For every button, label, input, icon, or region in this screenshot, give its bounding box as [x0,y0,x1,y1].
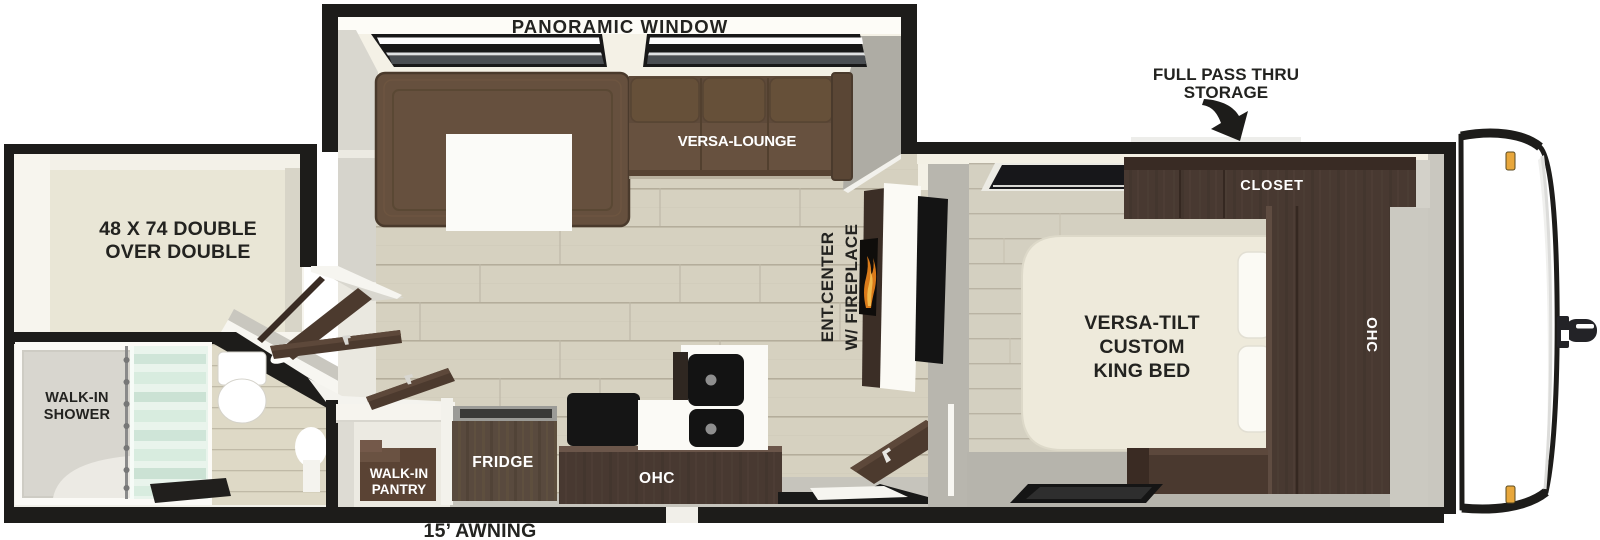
svg-text:W/ FIREPLACE: W/ FIREPLACE [842,224,861,351]
svg-text:SHOWER: SHOWER [44,407,111,423]
svg-text:FRIDGE: FRIDGE [472,454,534,471]
svg-text:WALK-IN: WALK-IN [370,466,428,481]
svg-text:48 X 74 DOUBLE: 48 X 74 DOUBLE [99,218,257,240]
svg-text:CUSTOM: CUSTOM [1099,336,1184,358]
svg-text:15’ AWNING: 15’ AWNING [424,520,537,540]
svg-text:VERSA-LOUNGE: VERSA-LOUNGE [678,133,797,150]
svg-text:OHC: OHC [1363,317,1380,353]
svg-text:PANTRY: PANTRY [372,482,427,497]
svg-text:FULL PASS THRU: FULL PASS THRU [1153,65,1299,84]
svg-text:VERSA-TILT: VERSA-TILT [1084,312,1199,334]
svg-text:STORAGE: STORAGE [1184,83,1268,102]
svg-text:OHC: OHC [639,470,675,487]
svg-text:OVER DOUBLE: OVER DOUBLE [105,241,250,263]
svg-text:WALK-IN: WALK-IN [45,390,108,406]
svg-text:CLOSET: CLOSET [1240,178,1304,194]
svg-text:PANORAMIC WINDOW: PANORAMIC WINDOW [512,16,729,37]
svg-text:ENT.CENTER: ENT.CENTER [818,232,837,343]
svg-text:KING BED: KING BED [1094,360,1191,382]
